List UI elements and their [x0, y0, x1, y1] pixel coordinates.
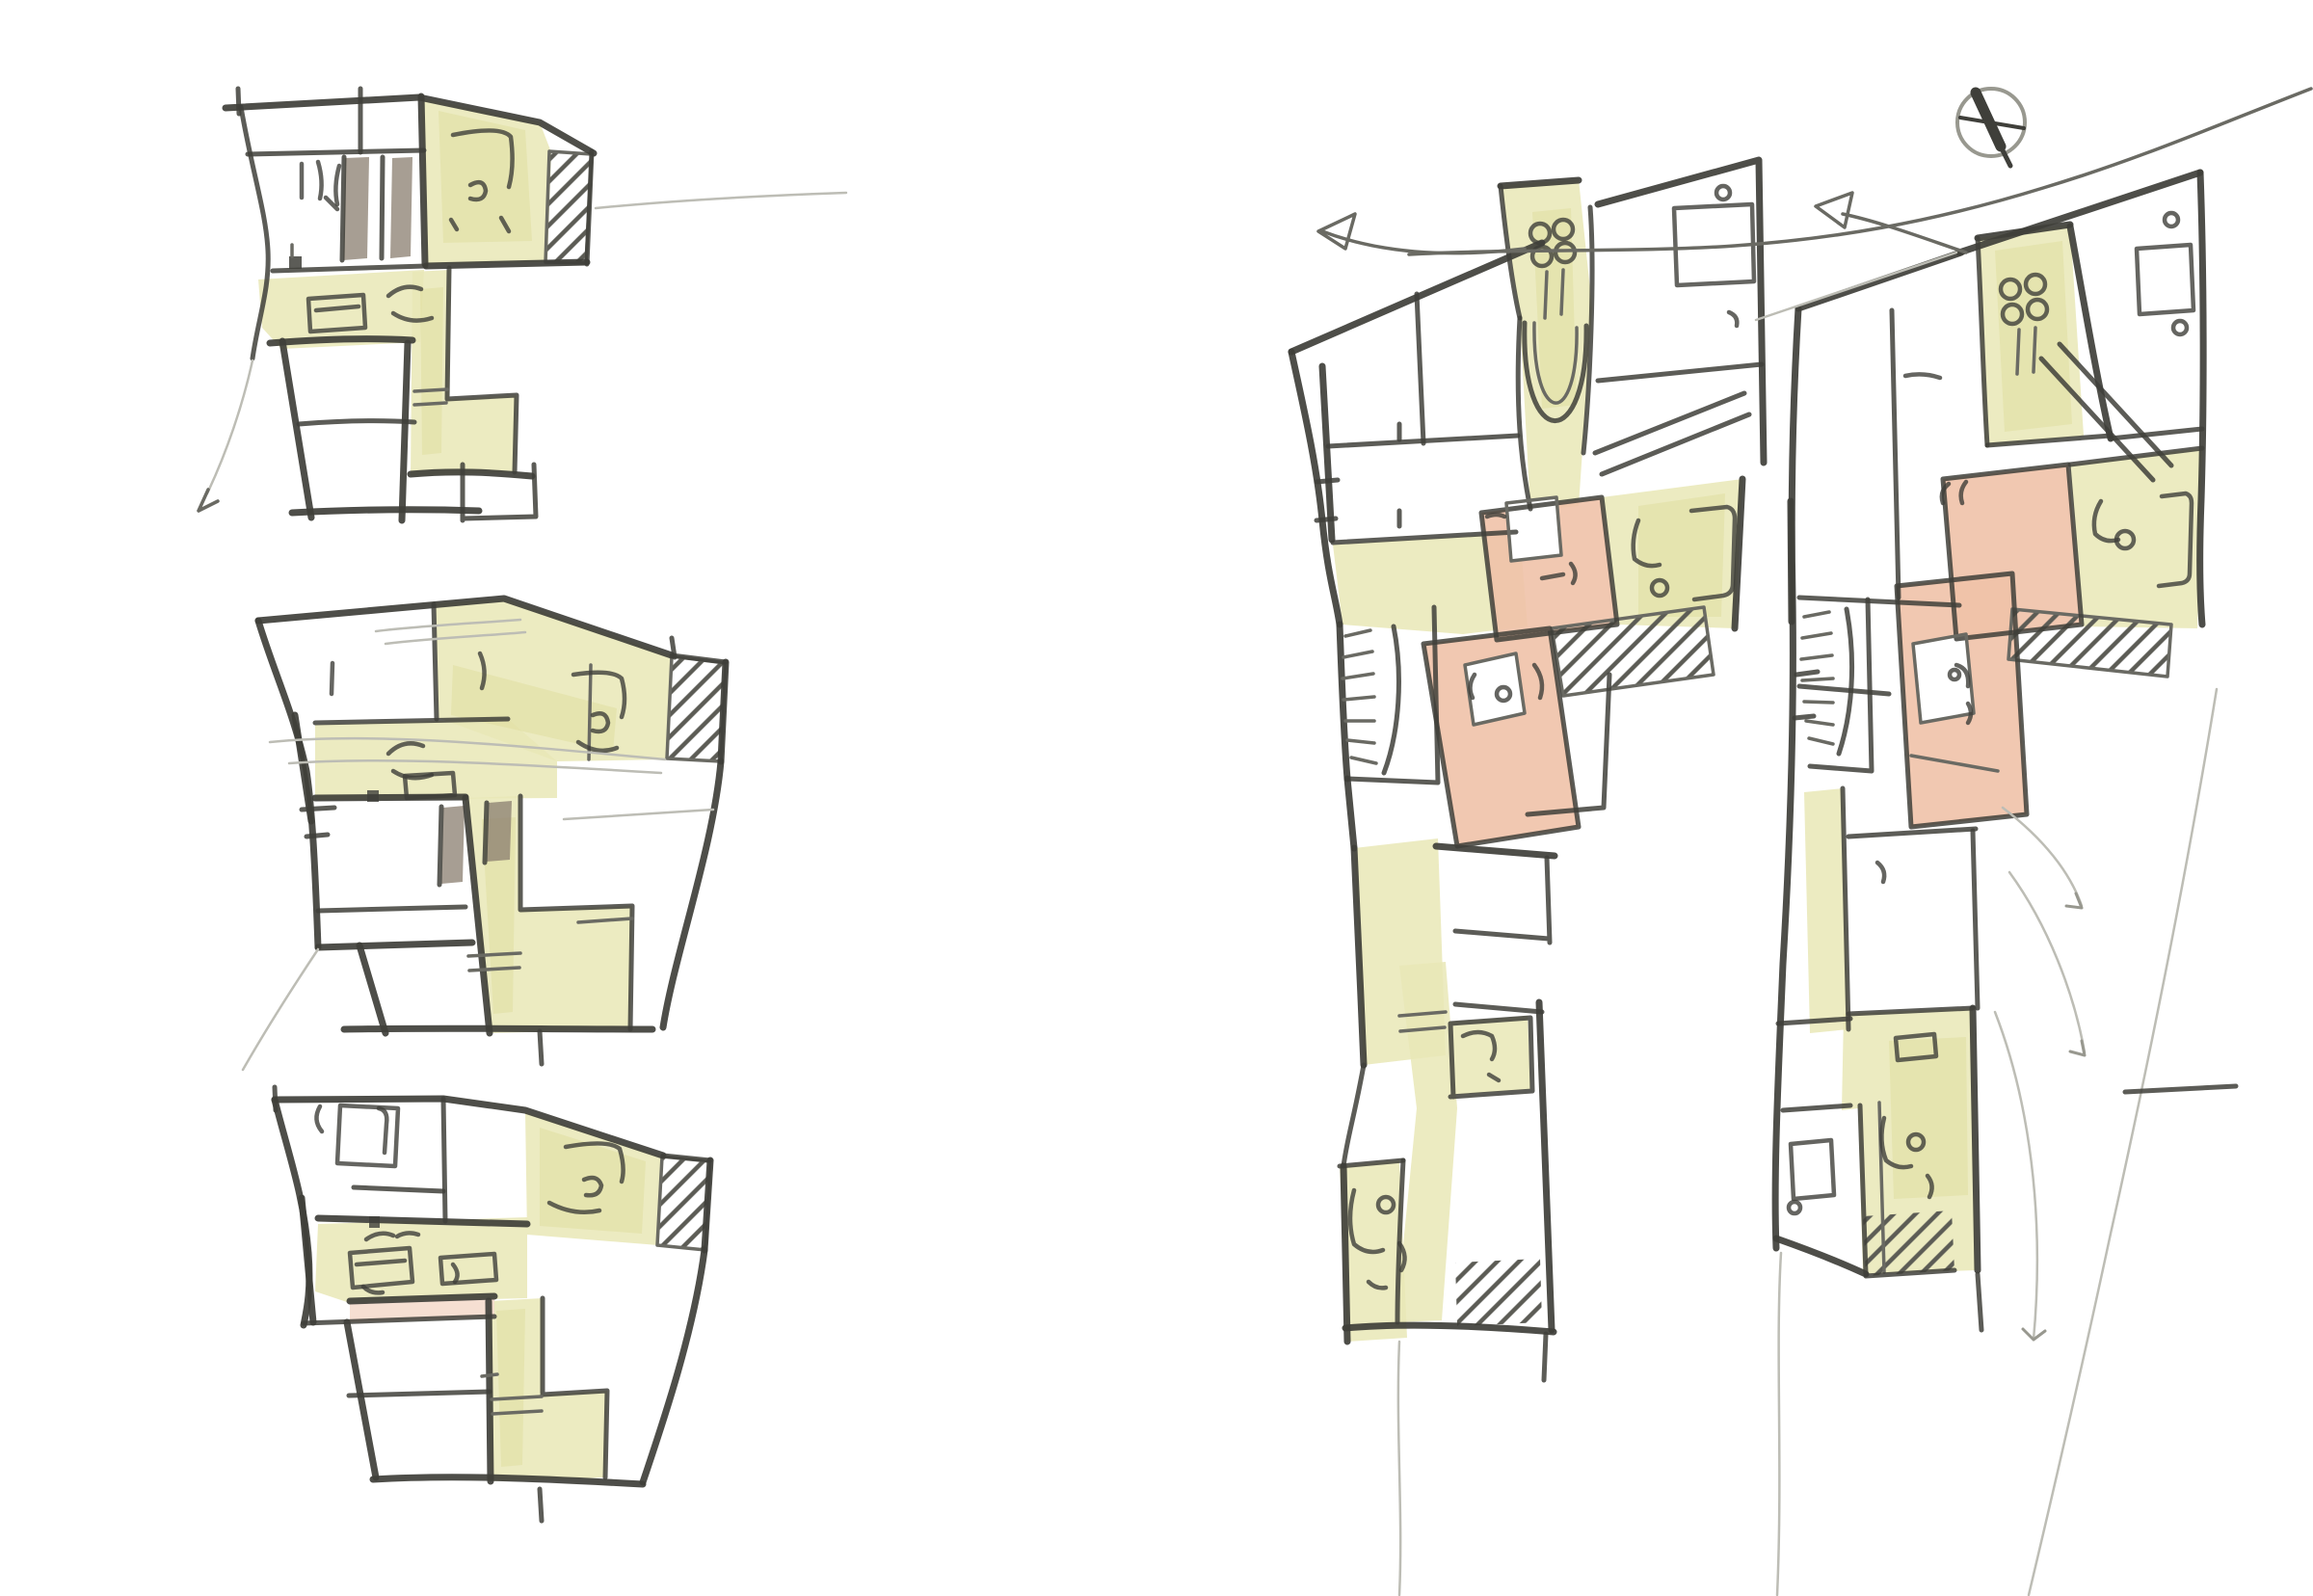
- stair-fan-icon: [1343, 626, 1398, 773]
- site-boundary-line: [2029, 689, 2217, 1595]
- direction-arrow-icon: [1816, 193, 1966, 253]
- flow-arrows: [1995, 808, 2085, 1340]
- unit-plan-left: [1291, 160, 1764, 1595]
- flow-arrow-icon: [2003, 808, 2082, 908]
- sketch-canvas: [0, 0, 2313, 1596]
- construction-tail-2: [1978, 1274, 1981, 1330]
- hatched-shaft: [545, 151, 592, 263]
- unit-plan-right: [1775, 173, 2203, 1595]
- hatched-shaft: [667, 656, 726, 761]
- sketch-page: [0, 0, 2313, 1596]
- direction-arrow-icon: [199, 360, 253, 511]
- direction-arrow-icon: [1318, 214, 1525, 253]
- floor-plan-variant-1: [199, 89, 846, 520]
- hatched-floor: [1455, 1259, 1542, 1326]
- north-compass-icon: [1957, 89, 2025, 166]
- stair-fan-icon: [1801, 609, 1852, 754]
- construction-tail: [1777, 1253, 1781, 1595]
- floor-plan-variant-2: [243, 598, 726, 1070]
- door-leaves: [343, 157, 412, 260]
- flow-arrow-icon: [2009, 872, 2085, 1055]
- construction-line: [596, 193, 846, 208]
- road-sweep-line-faint: [1756, 253, 1956, 320]
- flow-arrow-icon: [1995, 1012, 2045, 1340]
- hatched-floor: [1863, 1210, 1954, 1276]
- construction-tail: [1398, 1342, 1400, 1595]
- floor-plan-variant-3: [275, 1087, 710, 1521]
